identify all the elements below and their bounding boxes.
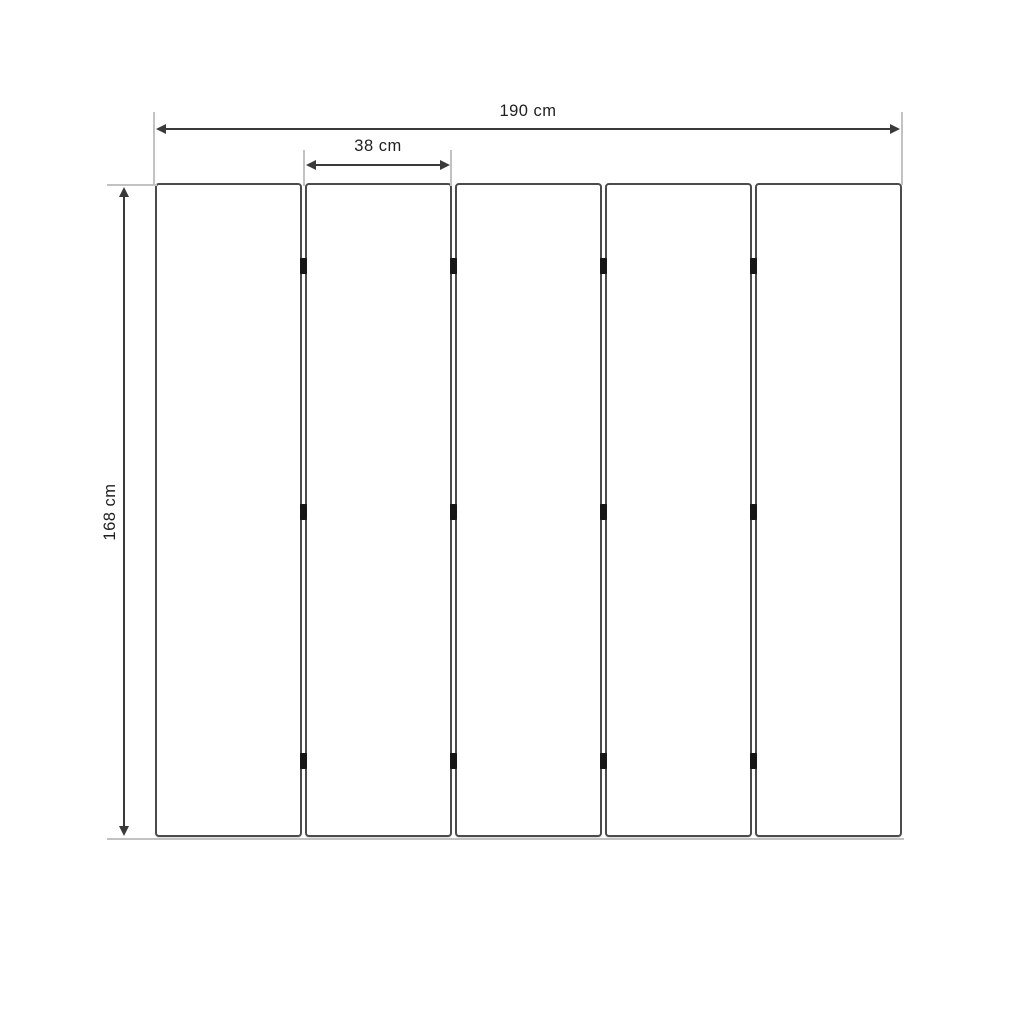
hinge-mark xyxy=(600,504,607,520)
dimension-line-height xyxy=(123,193,125,830)
extension-line-panel-left xyxy=(303,150,305,186)
panel-1 xyxy=(155,183,302,837)
hinge-mark xyxy=(300,258,307,274)
arrow-left-icon xyxy=(156,124,166,134)
total-width-label: 190 cm xyxy=(468,102,588,121)
bottom-extension-line xyxy=(107,838,904,840)
hinge-mark xyxy=(450,258,457,274)
panel-4 xyxy=(605,183,752,837)
height-label: 168 cm xyxy=(101,472,123,552)
hinge-mark xyxy=(450,753,457,769)
arrow-down-icon xyxy=(119,826,129,836)
panel-3 xyxy=(455,183,602,837)
hinge-mark xyxy=(300,504,307,520)
arrow-right-icon xyxy=(440,160,450,170)
hinge-mark xyxy=(750,504,757,520)
panel-2 xyxy=(305,183,452,837)
arrow-up-icon xyxy=(119,187,129,197)
arrow-left-icon xyxy=(306,160,316,170)
panel-5 xyxy=(755,183,902,837)
hinge-mark xyxy=(600,753,607,769)
dimension-line-total-width xyxy=(160,128,896,130)
hinge-mark xyxy=(750,258,757,274)
panel-width-label: 38 cm xyxy=(328,137,428,156)
extension-line-height-top xyxy=(107,184,157,186)
extension-line-total-right xyxy=(901,112,903,185)
extension-line-total-left xyxy=(153,112,155,185)
extension-line-panel-right xyxy=(450,150,452,186)
hinge-mark xyxy=(300,753,307,769)
hinge-mark xyxy=(750,753,757,769)
hinge-mark xyxy=(600,258,607,274)
dimension-line-panel-width xyxy=(310,164,446,166)
dimension-diagram: 190 cm 38 cm 168 cm xyxy=(0,0,1024,1024)
hinge-mark xyxy=(450,504,457,520)
arrow-right-icon xyxy=(890,124,900,134)
